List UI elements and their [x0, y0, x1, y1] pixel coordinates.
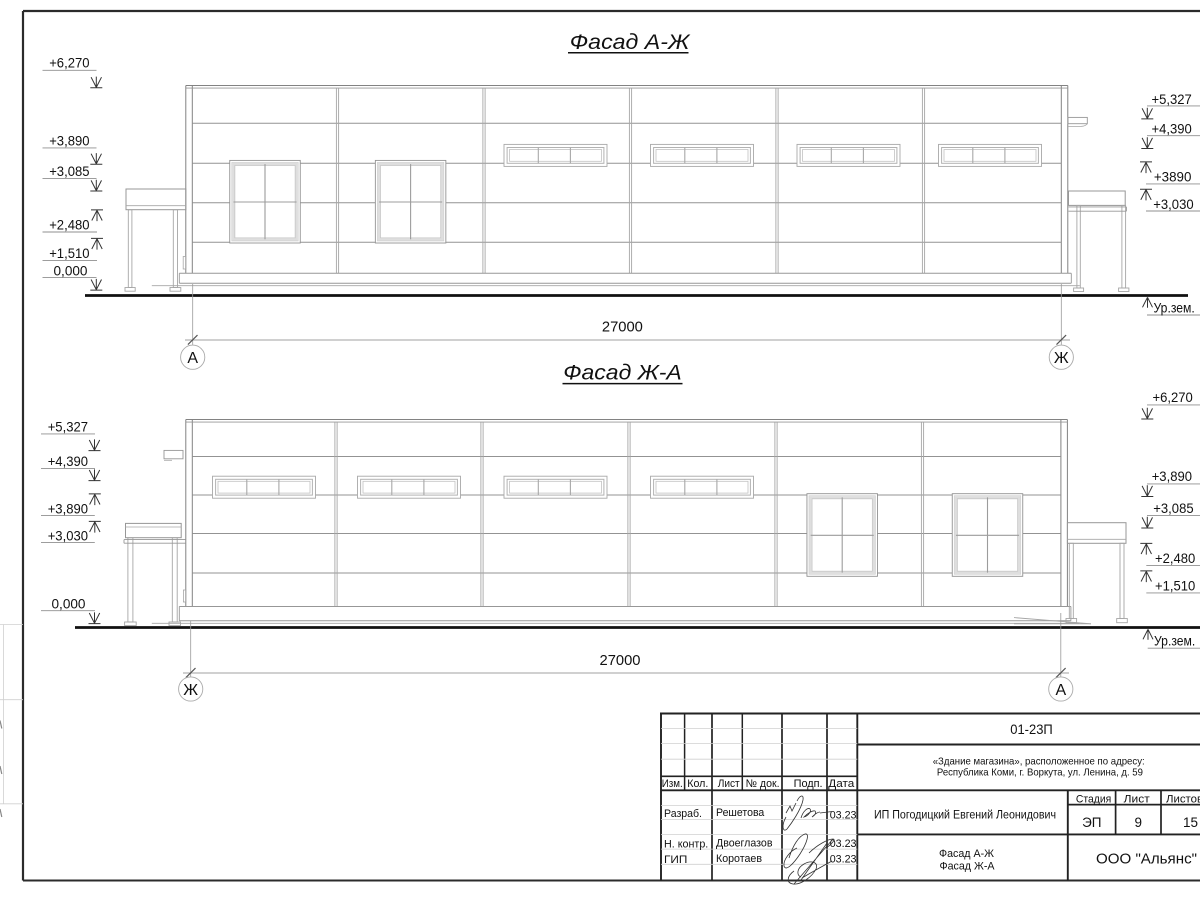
svg-text:+2,480: +2,480: [49, 216, 89, 232]
svg-text:Коротаев: Коротаев: [716, 853, 762, 865]
svg-text:+3,890: +3,890: [49, 132, 89, 148]
svg-text:+4,390: +4,390: [1152, 121, 1192, 137]
svg-text:Фасад Ж-А: Фасад Ж-А: [940, 861, 996, 873]
svg-text:ЭП: ЭП: [1082, 815, 1101, 830]
svg-text:Республика Коми, г. Воркута, у: Республика Коми, г. Воркута, ул. Ленина,…: [937, 766, 1143, 778]
svg-text:9: 9: [1135, 815, 1143, 830]
svg-text:Ур.зем.: Ур.зем.: [1154, 299, 1195, 315]
svg-text:+1,510: +1,510: [49, 245, 89, 261]
svg-text:+5,327: +5,327: [48, 418, 88, 434]
svg-text:Изм.: Изм.: [662, 778, 683, 790]
svg-text:Ж: Ж: [1054, 350, 1069, 367]
svg-text:Лист: Лист: [718, 778, 740, 790]
svg-text:Лист: Лист: [1124, 793, 1150, 805]
svg-text:ООО "Альянс": ООО "Альянс": [1096, 850, 1197, 867]
svg-text:+3,890: +3,890: [1152, 468, 1192, 484]
svg-text:Ж: Ж: [183, 682, 198, 699]
svg-text:Фасад А-Ж: Фасад А-Ж: [570, 30, 691, 54]
svg-text:ГИП: ГИП: [664, 854, 687, 866]
svg-text:+3,890: +3,890: [48, 500, 88, 516]
svg-text:Дата: Дата: [828, 778, 855, 790]
svg-text:Фасад Ж-А: Фасад Ж-А: [563, 361, 682, 385]
svg-text:27000: 27000: [602, 319, 643, 336]
svg-text:+3,030: +3,030: [1153, 196, 1193, 212]
svg-text:А: А: [187, 350, 198, 367]
svg-text:+1,510: +1,510: [1155, 577, 1195, 593]
svg-text:Стадия: Стадия: [1076, 793, 1111, 805]
svg-text:А: А: [1055, 682, 1066, 699]
svg-text:+6,270: +6,270: [49, 55, 89, 71]
svg-text:Двоеглазов: Двоеглазов: [716, 837, 773, 849]
svg-text:Фасад А-Ж: Фасад А-Ж: [939, 848, 994, 860]
svg-text:+3890: +3890: [1154, 168, 1192, 184]
svg-text:03.23: 03.23: [830, 810, 857, 822]
svg-text:+3,085: +3,085: [1153, 500, 1193, 516]
svg-text:+5,327: +5,327: [1152, 91, 1192, 107]
svg-text:01-23П: 01-23П: [1010, 721, 1053, 737]
svg-text:+6,270: +6,270: [1153, 389, 1193, 405]
svg-text:Подп.: Подп.: [794, 778, 823, 790]
svg-text:15: 15: [1183, 815, 1198, 830]
svg-text:Кол.: Кол.: [687, 778, 708, 790]
svg-text:0,000: 0,000: [54, 262, 88, 278]
svg-text:03.23: 03.23: [830, 854, 857, 866]
svg-text:№ док.: № док.: [746, 778, 780, 790]
svg-text:Н. контр.: Н. контр.: [664, 838, 708, 850]
svg-text:ИП Погодицкий Евгений Леонидов: ИП Погодицкий Евгений Леонидович: [874, 810, 1056, 822]
svg-text:Решетова: Решетова: [716, 807, 765, 819]
svg-text:+2,480: +2,480: [1155, 550, 1195, 566]
svg-text:+3,030: +3,030: [48, 528, 88, 544]
svg-text:+4,390: +4,390: [48, 453, 88, 469]
svg-text:27000: 27000: [600, 652, 641, 669]
svg-text:Разраб.: Разраб.: [664, 808, 702, 820]
svg-text:0,000: 0,000: [52, 595, 86, 611]
svg-text:Листов: Листов: [1166, 793, 1200, 805]
svg-text:Ур.зем.: Ур.зем.: [1154, 632, 1195, 648]
svg-text:+3,085: +3,085: [49, 163, 89, 179]
